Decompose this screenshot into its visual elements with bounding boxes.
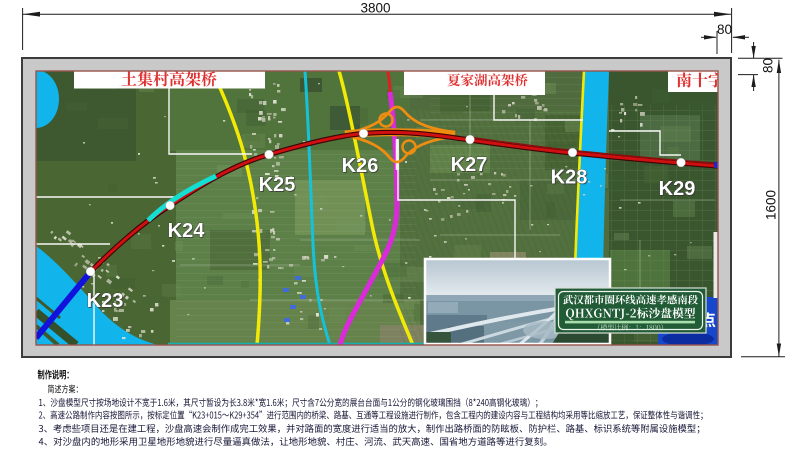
svg-text:K25: K25 — [259, 174, 296, 196]
svg-text:K26: K26 — [342, 155, 379, 177]
svg-text:K28: K28 — [551, 167, 588, 189]
svg-text:K27: K27 — [451, 154, 488, 176]
svg-text:80: 80 — [761, 58, 776, 73]
svg-text:3800: 3800 — [360, 1, 390, 16]
svg-text:1600: 1600 — [764, 190, 779, 220]
svg-text:K23: K23 — [87, 290, 124, 312]
svg-text:80: 80 — [717, 22, 732, 37]
svg-text:K24: K24 — [168, 220, 206, 242]
svg-text:K29: K29 — [659, 178, 696, 200]
